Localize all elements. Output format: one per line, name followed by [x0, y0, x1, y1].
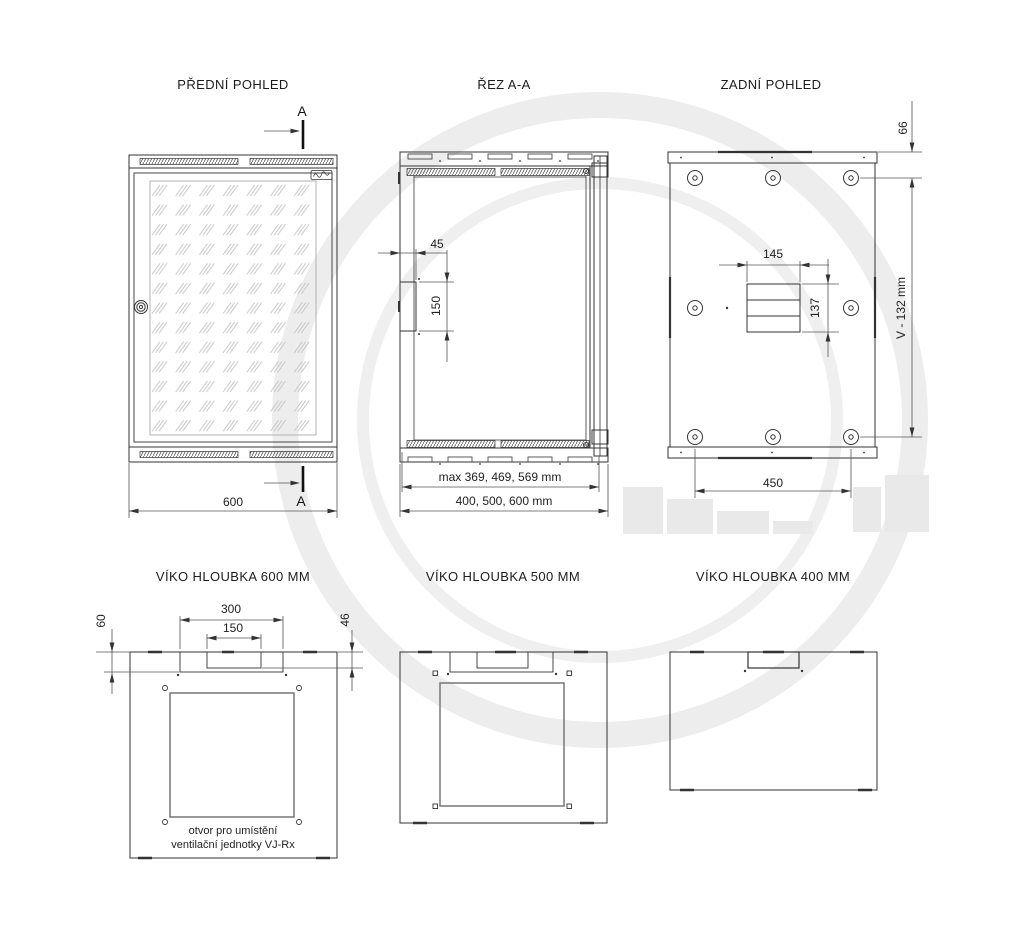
- vent-slot: [250, 159, 333, 165]
- fan-note-line2: ventilační jednotky VJ-Rx: [171, 839, 295, 851]
- mounting-hole: [688, 301, 703, 316]
- dim-notch-height: 150: [429, 296, 443, 316]
- lid500-cutout-outer: [450, 652, 553, 672]
- vent-strip: [407, 441, 495, 448]
- drawing-canvas: [0, 0, 1024, 938]
- rear-view-title: ZADNÍ POHLED: [721, 77, 822, 92]
- mounting-hole: [766, 171, 781, 186]
- lid500-title: VÍKO HLOUBKA 500 MM: [426, 569, 580, 584]
- dim-cutout-inner: 150: [223, 621, 243, 635]
- dim-height: V - 132 mm: [894, 277, 908, 339]
- dim-notch-depth: 45: [430, 237, 443, 251]
- dim-depth-right: 46: [338, 613, 352, 626]
- lid600-cutout-inner: [207, 652, 261, 668]
- vent-slot: [140, 452, 238, 458]
- dim-top-offset: 66: [896, 121, 910, 134]
- lid500-cutout-inner: [477, 652, 528, 668]
- vent-strip: [501, 169, 589, 176]
- fan-opening: [170, 693, 294, 817]
- vent-slot: [140, 159, 238, 165]
- dim-hole-spacing: 450: [763, 476, 783, 490]
- front-view-drawing: [129, 120, 337, 518]
- vent-strip: [501, 441, 589, 448]
- vent-strip: [407, 169, 495, 176]
- mounting-hole: [688, 430, 703, 445]
- dim-depth-inner: max 369, 469, 569 mm: [439, 470, 562, 484]
- technical-drawing-page: { "line_color": "#333333", "watermark_co…: [0, 0, 1024, 938]
- mounting-hole: [844, 430, 859, 445]
- section-label-bottom: A: [296, 493, 305, 509]
- bottom-flange: [400, 448, 608, 462]
- dim-depth-outer: 400, 500, 600 mm: [456, 494, 553, 508]
- dim-cable-width: 145: [763, 247, 783, 261]
- mounting-hole: [688, 171, 703, 186]
- vent-slot: [250, 452, 333, 458]
- lid400-title: VÍKO HLOUBKA 400 MM: [696, 569, 850, 584]
- front-view-title: PŘEDNÍ POHLED: [177, 77, 288, 92]
- door-section: [584, 156, 609, 456]
- fan-note-line1: otvor pro umístění: [189, 825, 278, 837]
- dim-depth-left: 60: [94, 614, 108, 627]
- section-label-top: A: [297, 103, 306, 119]
- lid600-drawing: [96, 616, 363, 858]
- glass-panel: [150, 181, 316, 435]
- dim-cable-height: 137: [808, 298, 822, 318]
- lock-icon: [135, 301, 148, 314]
- mounting-hole: [844, 171, 859, 186]
- section-view-title: ŘEZ A-A: [477, 77, 530, 92]
- brand-logo: [311, 171, 332, 180]
- dim-front-width: 600: [223, 495, 243, 509]
- dim-cutout-outer: 300: [221, 602, 241, 616]
- lid600-cutout-outer: [180, 652, 283, 672]
- mounting-hole: [766, 430, 781, 445]
- section-cut-marker-top: [264, 120, 303, 149]
- lid600-title: VÍKO HLOUBKA 600 MM: [156, 569, 310, 584]
- mounting-hole: [844, 301, 859, 316]
